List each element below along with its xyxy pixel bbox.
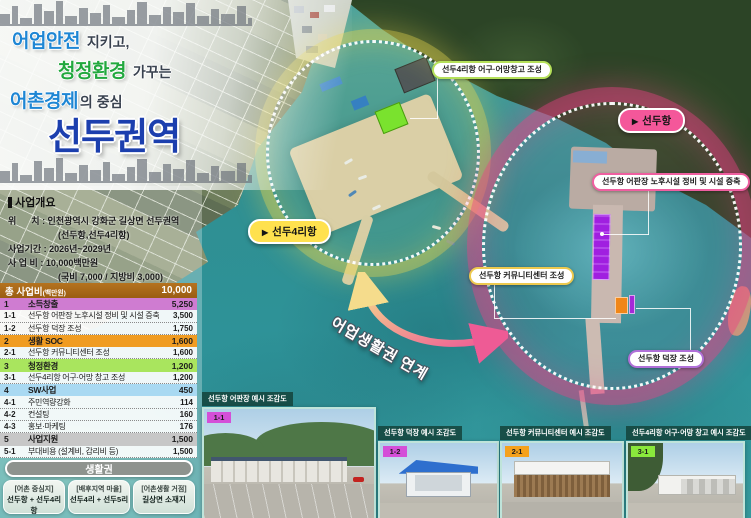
budget-unit: (백만원): [43, 290, 66, 297]
city-skyline-bottom: [0, 157, 252, 183]
livelihood-heading: 생활권: [5, 460, 193, 477]
triangle-icon: ▶: [632, 117, 638, 126]
budget-row: 5-1부대비용 (설계비, 감리비 등)1,500: [0, 446, 197, 458]
row-no: 1: [4, 299, 28, 309]
callout-connector: [690, 308, 691, 352]
page-title: 선두권역: [48, 106, 180, 160]
budget-header-label: 총 사업비(백만원): [5, 284, 66, 298]
budget-table: 총 사업비(백만원) 10,000 1소득창출5,250 1-1선두항 어판장 …: [0, 283, 197, 458]
overview-line: (선두항,선두4리항): [8, 229, 198, 243]
zone-tag: [어촌생활 거점]: [134, 484, 194, 495]
zone-name: 길상면 소재지: [134, 495, 194, 506]
budget-row: 4-3홍보·마케팅176: [0, 421, 197, 433]
callout-connector: [410, 118, 438, 119]
row-value: 160: [159, 410, 193, 419]
photo-badge: 3-1: [631, 446, 655, 457]
budget-row: 1-1선두항 어판장 노후시설 정비 및 시설 증축3,500: [0, 310, 197, 322]
row-value: 1,500: [159, 447, 193, 456]
row-value: 1,200: [159, 373, 193, 382]
callout-connector: [437, 77, 438, 119]
title-line-1: 어업안전지키고,: [12, 26, 129, 53]
row-no: 5: [4, 434, 28, 444]
callout-connector: [636, 308, 690, 309]
photo-title: 선두4리항 어구·어망 창고 예시 조감도: [626, 426, 751, 440]
photo-badge: 2-1: [505, 446, 529, 457]
port-label-text: 선두4리항: [272, 226, 316, 238]
livelihood-zone-center: [어촌 중심지] 선두항 + 선두4리항: [3, 480, 65, 514]
budget-row-category: 4SW사업450: [0, 384, 197, 396]
city-skyline-top: [0, 0, 252, 26]
port-label-seonduhang: ▶선두항: [618, 108, 685, 133]
callout-deokjang: 선두항 덕장 조성: [628, 350, 704, 368]
overview-heading-text: 사업개요: [15, 194, 55, 210]
row-value: 1,600: [159, 348, 193, 357]
budget-row-category: 2생활 SOC1,600: [0, 335, 197, 347]
row-no: 1-2: [4, 324, 28, 333]
budget-table-header: 총 사업비(백만원) 10,000: [0, 283, 197, 298]
photo-scene: [204, 409, 374, 518]
callout-connector: [648, 188, 649, 235]
zone-name: 선두항 + 선두4리항: [4, 495, 64, 516]
row-value: 1,600: [159, 336, 193, 346]
row-no: 4-2: [4, 410, 28, 419]
deokjang-highlight: [629, 295, 635, 314]
row-no: 3-1: [4, 373, 28, 382]
photo-title: 선두항 커뮤니티센터 예시 조감도: [500, 426, 611, 440]
row-label: 사업지원: [28, 433, 159, 445]
budget-row-category: 1소득창출5,250: [0, 298, 197, 310]
row-label: 소득창출: [28, 298, 159, 310]
photo-thumbnail: 3-1: [626, 441, 745, 518]
photo-badge: 1-2: [383, 446, 407, 457]
row-no: 5-1: [4, 447, 28, 456]
row-label: 부대비용 (설계비, 감리비 등): [28, 446, 159, 457]
row-no: 2-1: [4, 348, 28, 357]
row-label: 선두4리항 어구·어망 창고 조성: [28, 372, 159, 383]
zone-circle-seonduhang: [482, 102, 742, 390]
title-em-clean-environment: 청정환경: [58, 61, 126, 82]
title-rest: 지키고,: [87, 34, 130, 50]
row-value: 114: [159, 398, 193, 407]
budget-row-category: 5사업지원1,500: [0, 433, 197, 445]
callout-fish-market: 선두항 어판장 노후시설 정비 및 시설 증축: [592, 173, 750, 191]
budget-total-value: 10,000: [161, 285, 192, 296]
photo-panel-fish-market: 선두항 어판장 예시 조감도 1-1: [202, 388, 376, 518]
row-label: 청정환경: [28, 360, 159, 372]
photo-thumbnail: 1-2: [378, 441, 499, 518]
poster: 어업생활권 연계 ▶선두4리항 ▶선두항 선두4리항 어구·어망창고 조성 선두…: [0, 0, 751, 518]
zone-tag: [배후지역 마을]: [69, 484, 129, 495]
callout-connector: [603, 234, 649, 235]
photo-title: 선두항 어판장 예시 조감도: [202, 392, 293, 406]
community-center-highlight: [615, 297, 628, 314]
title-line-2: 청정환경가꾸는: [58, 56, 172, 83]
row-value: 450: [159, 385, 193, 395]
fish-market-highlight: [592, 214, 610, 280]
row-label: 생활 SOC: [28, 335, 159, 347]
row-label: 선두항 커뮤니티센터 조성: [28, 347, 159, 358]
budget-row: 2-1선두항 커뮤니티센터 조성1,600: [0, 347, 197, 359]
row-value: 1,200: [159, 361, 193, 371]
port-label-text: 선두항: [642, 115, 671, 127]
budget-row: 3-1선두4리항 어구·어망 창고 조성1,200: [0, 372, 197, 384]
project-overview: 사업개요 위 치 : 인천광역시 강화군 길상면 선두권역 (선두항,선두4리항…: [8, 194, 198, 285]
callout-community-center: 선두항 커뮤니티센터 조성: [469, 267, 574, 285]
budget-row-category: 3청정환경1,200: [0, 359, 197, 371]
photo-thumbnail: 2-1: [500, 441, 624, 518]
row-label: SW사업: [28, 384, 159, 396]
row-label: 선두항 덕장 조성: [28, 323, 159, 334]
row-no: 4: [4, 385, 28, 395]
photo-panel-warehouse: 선두4리항 어구·어망 창고 예시 조감도 3-1: [626, 422, 751, 518]
budget-row: 4-2컨설팅160: [0, 409, 197, 421]
callout-warehouse: 선두4리항 어구·어망창고 조성: [432, 61, 552, 79]
row-no: 3: [4, 361, 28, 371]
overview-line: 사 업 비 : 10,000백만원: [8, 257, 198, 271]
photo-thumbnail: 1-1: [202, 407, 376, 518]
row-value: 176: [159, 422, 193, 431]
row-value: 1,500: [159, 434, 193, 444]
photo-panel-community-center: 선두항 커뮤니티센터 예시 조감도 2-1: [500, 422, 624, 518]
row-label: 컨설팅: [28, 409, 159, 420]
row-no: 1-1: [4, 311, 28, 320]
row-no: 4-3: [4, 422, 28, 431]
livelihood-zone-base: [어촌생활 거점] 길상면 소재지: [133, 480, 195, 514]
photo-title: 선두항 덕장 예시 조감도: [378, 426, 462, 440]
row-label: 주민역량강화: [28, 397, 159, 408]
row-label: 홍보·마케팅: [28, 421, 159, 432]
row-value: 3,500: [159, 311, 193, 320]
callout-connector: [494, 318, 616, 319]
row-value: 5,250: [159, 299, 193, 309]
overview-line: 위 치 : 인천광역시 강화군 길상면 선두권역: [8, 215, 198, 229]
zone-name: 선두4리 + 선두5리: [69, 495, 129, 506]
zone-tag: [어촌 중심지]: [4, 484, 64, 495]
title-em-fishing-safety: 어업안전: [12, 31, 80, 52]
row-no: 4-1: [4, 398, 28, 407]
triangle-icon: ▶: [262, 228, 268, 237]
photo-badge: 1-1: [207, 412, 231, 423]
port-label-seondu4ri: ▶선두4리항: [248, 219, 331, 244]
budget-row: 1-2선두항 덕장 조성1,750: [0, 323, 197, 335]
overview-heading: 사업개요: [8, 194, 198, 210]
heading-bar-icon: [8, 197, 12, 208]
livelihood-zone-hinterland: [배후지역 마을] 선두4리 + 선두5리: [68, 480, 130, 514]
row-value: 1,750: [159, 324, 193, 333]
budget-row: 4-1주민역량강화114: [0, 396, 197, 408]
connector-node: [600, 232, 604, 236]
row-no: 2: [4, 336, 28, 346]
photo-panel-deokjang: 선두항 덕장 예시 조감도 1-2: [378, 422, 499, 518]
overview-line: 사업기간 : 2026년~2029년: [8, 243, 198, 257]
title-rest: 가꾸는: [133, 64, 172, 80]
row-label: 선두항 어판장 노후시설 정비 및 시설 증축: [28, 310, 159, 321]
